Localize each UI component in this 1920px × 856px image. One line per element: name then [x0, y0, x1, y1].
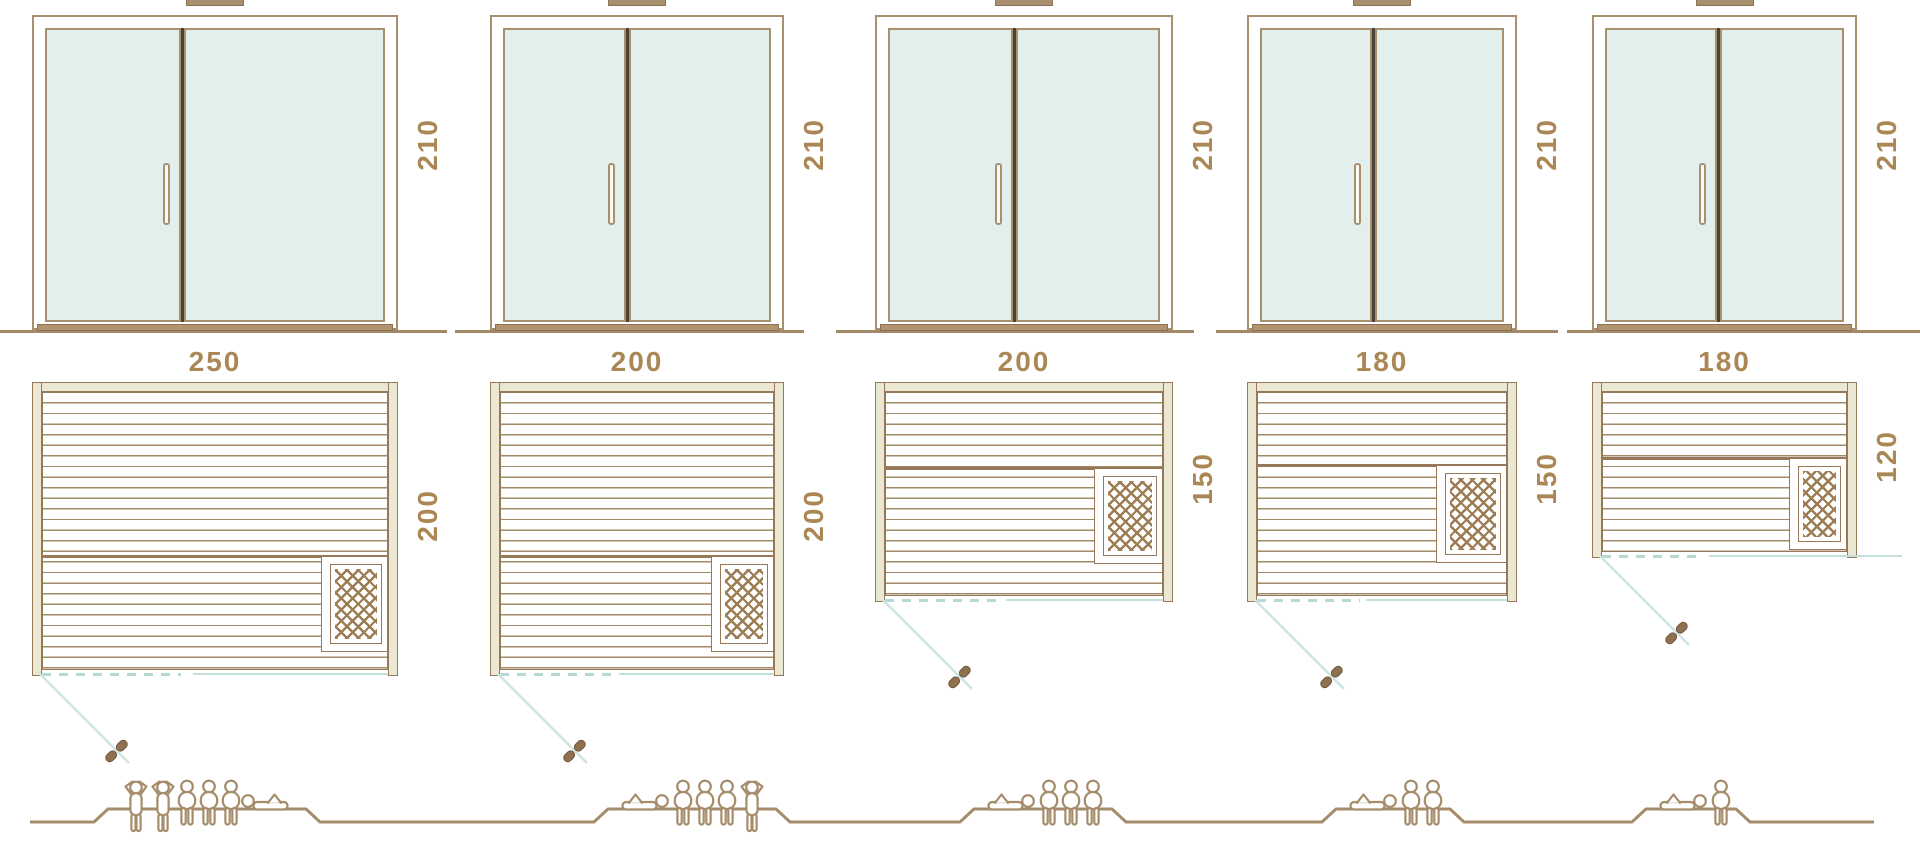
- wall: [490, 382, 784, 392]
- person-seated-icon: [1713, 781, 1729, 825]
- glass-wall-line: [1006, 599, 1163, 602]
- door-handle-icon: [1354, 163, 1361, 225]
- person-reclining-icon: [989, 795, 1034, 810]
- person-seated-icon: [1403, 781, 1419, 825]
- door-vent-cap-icon: [608, 0, 666, 6]
- door-glass-left: [888, 28, 1013, 322]
- door-glazing: [503, 28, 771, 322]
- door-handle-icon: [608, 163, 615, 225]
- door-glass-left: [503, 28, 626, 322]
- door-glass-left: [1605, 28, 1717, 322]
- heater-grill-icon: [1803, 471, 1836, 537]
- wall: [490, 382, 500, 676]
- heater-area: [1094, 468, 1162, 564]
- plan-width-label: 180: [1247, 346, 1517, 378]
- door-threshold: [495, 324, 779, 331]
- door-height-label: 210: [1187, 118, 1219, 171]
- plan-width-label: 200: [490, 346, 784, 378]
- bench-area: [500, 392, 774, 670]
- wall: [1592, 382, 1857, 392]
- door-glass-right: [184, 28, 385, 322]
- door-height-label: 210: [1531, 118, 1563, 171]
- person-standing-icon: [126, 782, 147, 832]
- door-glass-left: [1260, 28, 1372, 322]
- heater-area: [321, 556, 387, 652]
- heater-grill-icon: [1108, 481, 1152, 551]
- door-threshold: [1252, 324, 1512, 331]
- heater-area: [1789, 458, 1846, 550]
- heater-grill-icon: [725, 569, 763, 639]
- person-standing-icon: [153, 782, 174, 832]
- door-glass-right: [1016, 28, 1160, 322]
- wall: [1247, 382, 1257, 602]
- person-seated-icon: [675, 781, 691, 825]
- person-seated-icon: [1063, 781, 1079, 825]
- plan-width-label: 250: [32, 346, 398, 378]
- door-glazing: [1260, 28, 1504, 322]
- door-swing: [877, 594, 1007, 702]
- person-seated-icon: [201, 781, 217, 825]
- glass-wall-line: [1366, 599, 1507, 602]
- plan-depth-label: 200: [798, 489, 830, 542]
- heater-grill-icon: [1450, 478, 1496, 550]
- person-seated-icon: [179, 781, 195, 825]
- person-reclining-icon: [1351, 795, 1396, 810]
- ground-profile-line: [30, 809, 1874, 822]
- wall: [1163, 382, 1173, 602]
- sauna-variant-5: 210 180 120: [1592, 0, 1857, 856]
- floor-plan: [32, 382, 398, 676]
- door-threshold: [880, 324, 1168, 331]
- wall: [388, 382, 398, 676]
- plan-depth-label: 120: [1871, 430, 1903, 483]
- sauna-variant-1: 210 250 200: [32, 0, 398, 856]
- door-elevation: [1247, 15, 1517, 330]
- door-threshold: [1597, 324, 1852, 331]
- door-swing: [1249, 594, 1379, 702]
- door-height-label: 210: [1871, 118, 1903, 171]
- door-glass-left: [45, 28, 181, 322]
- wall: [32, 382, 398, 392]
- door-vent-cap-icon: [186, 0, 244, 6]
- person-seated-icon: [719, 781, 735, 825]
- capacity-figures-strip: [0, 752, 1920, 856]
- person-seated-icon: [697, 781, 713, 825]
- door-handle-icon: [1699, 163, 1706, 225]
- floor-plan: [1247, 382, 1517, 602]
- door-glазing: [45, 28, 385, 322]
- sauna-variant-4: 210 180 150: [1247, 0, 1517, 856]
- plan-depth-label: 150: [1187, 452, 1219, 505]
- person-standing-icon: [742, 782, 763, 832]
- heater-area: [711, 556, 773, 652]
- door-elevation: [490, 15, 784, 330]
- glass-wall-line: [1709, 555, 1902, 558]
- person-reclining-icon: [623, 795, 668, 810]
- door-glazing: [1605, 28, 1844, 322]
- wall: [774, 382, 784, 676]
- person-seated-icon: [1085, 781, 1101, 825]
- door-handle-icon: [995, 163, 1002, 225]
- heater: [1445, 473, 1501, 555]
- plan-width-label: 200: [875, 346, 1173, 378]
- wall: [875, 382, 1173, 392]
- door-glass-right: [1720, 28, 1844, 322]
- door-glazing: [888, 28, 1160, 322]
- heater: [1798, 466, 1841, 542]
- door-elevation: [875, 15, 1173, 330]
- wall: [1592, 382, 1602, 558]
- door-vent-cap-icon: [995, 0, 1053, 6]
- door-elevation: [32, 15, 398, 330]
- heater: [330, 564, 382, 644]
- wall: [875, 382, 885, 602]
- plan-width-label: 180: [1592, 346, 1857, 378]
- glass-wall-line: [619, 673, 774, 676]
- floor-plan: [875, 382, 1173, 602]
- bench-area: [885, 392, 1163, 596]
- door-elevation: [1592, 15, 1857, 330]
- glass-wall-line: [193, 673, 388, 676]
- bench-area: [1257, 392, 1507, 596]
- person-reclining-icon: [242, 795, 287, 810]
- person-seated-icon: [1041, 781, 1057, 825]
- wall: [1507, 382, 1517, 602]
- bench-area: [1602, 392, 1847, 552]
- floor-plan: [490, 382, 784, 676]
- plan-depth-label: 200: [412, 489, 444, 542]
- wall: [1247, 382, 1517, 392]
- bench-area: [42, 392, 388, 670]
- sauna-variant-2: 210 200 200: [490, 0, 784, 856]
- sauna-variant-3: 210 200 150: [875, 0, 1173, 856]
- door-vent-cap-icon: [1696, 0, 1754, 6]
- door-glass-right: [629, 28, 771, 322]
- heater-grill-icon: [335, 569, 377, 639]
- door-handle-icon: [163, 163, 170, 225]
- heater: [1103, 476, 1157, 556]
- door-threshold: [37, 324, 393, 331]
- plan-depth-label: 150: [1531, 452, 1563, 505]
- person-seated-icon: [223, 781, 239, 825]
- door-height-label: 210: [798, 118, 830, 171]
- door-vent-cap-icon: [1353, 0, 1411, 6]
- door-height-label: 210: [412, 118, 444, 171]
- wall: [1847, 382, 1857, 558]
- person-seated-icon: [1425, 781, 1441, 825]
- floor-plan: [1592, 382, 1857, 558]
- heater-area: [1436, 465, 1506, 563]
- heater: [720, 564, 768, 644]
- door-glass-right: [1375, 28, 1504, 322]
- wall: [32, 382, 42, 676]
- person-reclining-icon: [1661, 795, 1706, 810]
- sauna-size-diagram: 210 250 200: [0, 0, 1920, 856]
- door-swing: [1594, 550, 1724, 658]
